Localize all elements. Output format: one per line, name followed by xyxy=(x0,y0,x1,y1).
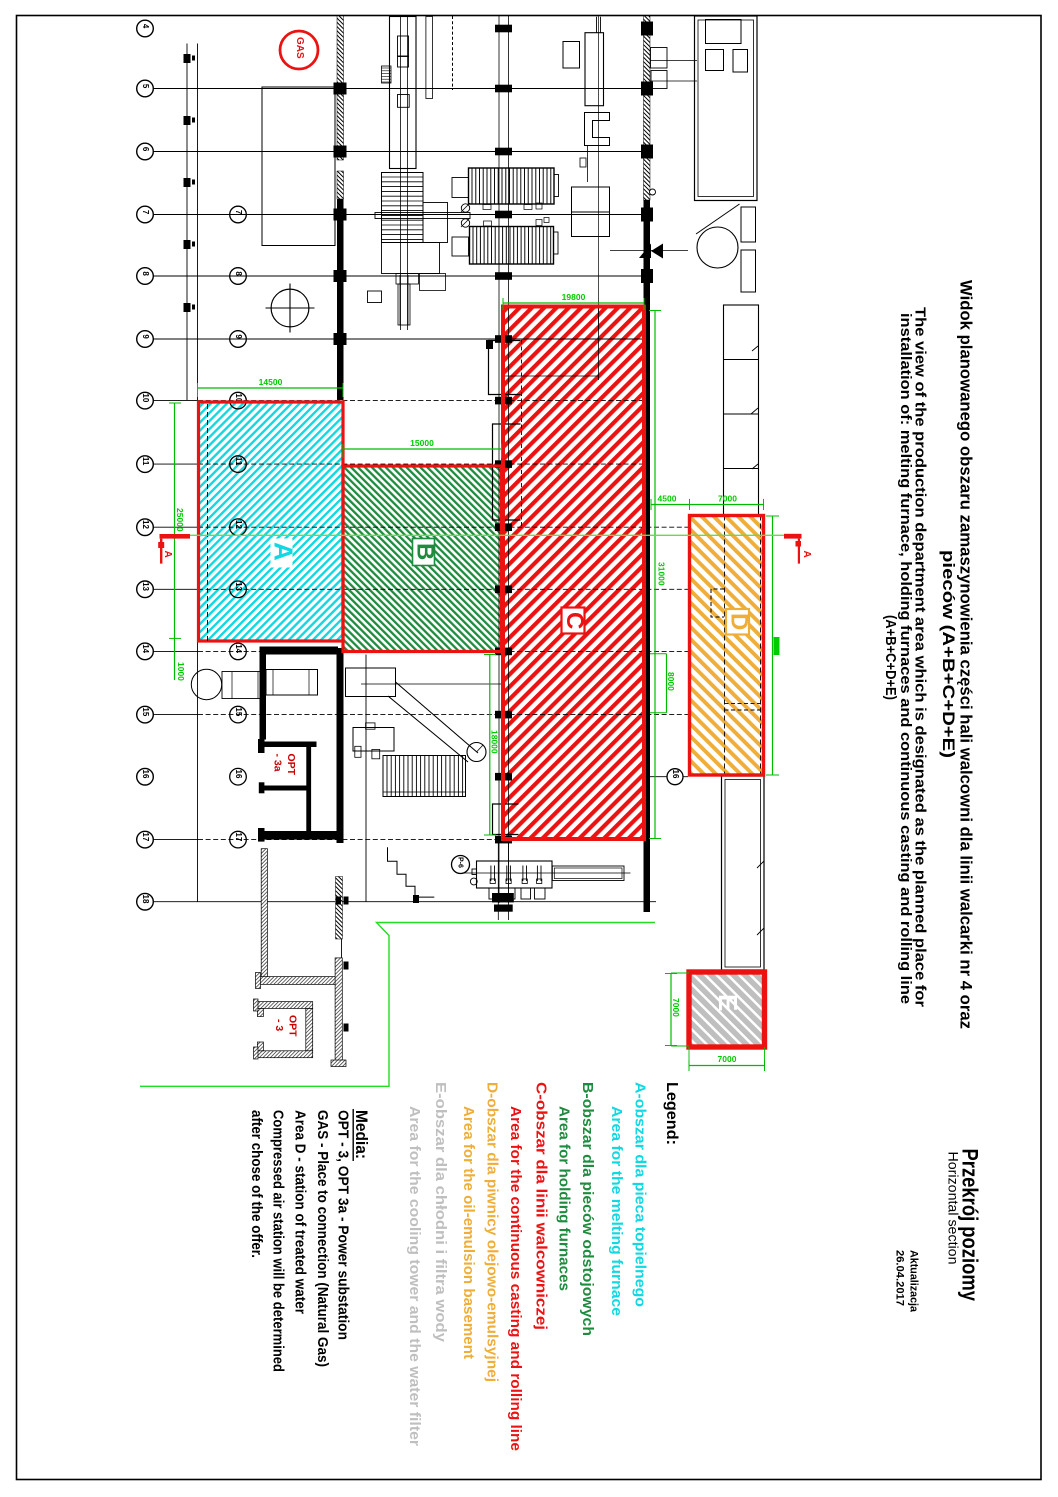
svg-text:7: 7 xyxy=(234,210,243,215)
svg-text:(A+B+C+D+E): (A+B+C+D+E) xyxy=(882,615,899,700)
svg-text:Area D - station of treated wa: Area D - station of treated water xyxy=(291,1110,308,1314)
svg-text:- 3a: - 3a xyxy=(271,754,283,772)
svg-text:4: 4 xyxy=(141,24,150,29)
svg-text:31000: 31000 xyxy=(656,562,666,586)
svg-text:11: 11 xyxy=(141,457,150,466)
svg-text:Legend:: Legend: xyxy=(663,1082,680,1145)
svg-text:12: 12 xyxy=(141,520,150,529)
svg-text:15: 15 xyxy=(141,707,150,716)
svg-text:Aktualizacja: Aktualizacja xyxy=(907,1250,919,1313)
svg-text:Compressed air station will be: Compressed air station will be determine… xyxy=(270,1110,287,1372)
svg-text:9: 9 xyxy=(234,334,243,339)
svg-text:P-6: P-6 xyxy=(457,857,464,868)
svg-text:1000: 1000 xyxy=(176,662,186,681)
svg-text:7000: 7000 xyxy=(718,1054,737,1064)
svg-text:14: 14 xyxy=(141,644,150,653)
svg-text:12: 12 xyxy=(234,520,243,529)
svg-text:13: 13 xyxy=(141,582,150,591)
svg-text:A: A xyxy=(801,551,812,558)
svg-text:13: 13 xyxy=(234,582,243,591)
svg-text:Horizontal section: Horizontal section xyxy=(946,1152,961,1265)
svg-text:- 3: - 3 xyxy=(273,1019,285,1031)
svg-text:5: 5 xyxy=(141,84,150,89)
svg-text:26.04.2017: 26.04.2017 xyxy=(894,1250,906,1306)
svg-text:10: 10 xyxy=(141,393,150,402)
svg-text:pieców (A+B+C+D+E): pieców (A+B+C+D+E) xyxy=(939,550,958,758)
svg-text:14500: 14500 xyxy=(259,377,283,387)
svg-text:Area for the melting furnace: Area for the melting furnace xyxy=(608,1106,625,1316)
svg-text:E: E xyxy=(713,994,743,1011)
svg-text:OPT - 3, OPT 3a - Power substa: OPT - 3, OPT 3a - Power substation xyxy=(334,1110,351,1340)
svg-text:Area for holding furnaces: Area for holding furnaces xyxy=(555,1106,572,1291)
svg-text:16: 16 xyxy=(141,770,150,779)
svg-text:after chose of the offer.: after chose of the offer. xyxy=(248,1110,265,1258)
svg-text:A: A xyxy=(269,542,299,561)
svg-text:4500: 4500 xyxy=(658,494,677,504)
svg-text:6: 6 xyxy=(141,147,150,152)
svg-text:Area for the continuous castin: Area for the continuous casting and roll… xyxy=(507,1106,524,1451)
svg-text:11: 11 xyxy=(234,457,243,466)
svg-text:D: D xyxy=(725,613,752,630)
svg-text:8000: 8000 xyxy=(666,672,676,691)
svg-text:A: A xyxy=(162,551,173,558)
svg-text:7: 7 xyxy=(141,210,150,215)
svg-text:18000: 18000 xyxy=(489,730,499,754)
svg-text:GAS: GAS xyxy=(294,37,305,59)
svg-text:OPT: OPT xyxy=(285,754,297,776)
svg-text:Area for the cooling tower and: Area for the cooling tower and the water… xyxy=(406,1106,423,1446)
svg-text:C: C xyxy=(561,612,588,629)
svg-text:14: 14 xyxy=(234,644,243,653)
svg-text:7000: 7000 xyxy=(718,494,737,504)
svg-text:16: 16 xyxy=(671,770,680,779)
svg-text:7000: 7000 xyxy=(671,998,681,1017)
svg-text:8: 8 xyxy=(141,271,150,276)
svg-text:C-obszar dla linii walcownicze: C-obszar dla linii walcowniczej xyxy=(533,1082,550,1330)
svg-text:17: 17 xyxy=(141,832,150,841)
svg-text:15: 15 xyxy=(234,707,243,716)
svg-text:B-obszar dla pieców odstojowyc: B-obszar dla pieców odstojowych xyxy=(579,1082,596,1336)
svg-text:B: B xyxy=(411,543,438,560)
svg-text:A-obszar dla pieca topielnego: A-obszar dla pieca topielnego xyxy=(632,1082,649,1307)
svg-text:25000: 25000 xyxy=(175,508,185,532)
svg-text:Widok planowanego obszaru zama: Widok planowanego obszaru zamaszynowieni… xyxy=(957,280,976,1029)
svg-text:19800: 19800 xyxy=(562,292,586,302)
svg-text:16: 16 xyxy=(234,770,243,779)
svg-text:E-obszar dla chłodni i filtra: E-obszar dla chłodni i filtra wody xyxy=(432,1082,449,1343)
svg-text:GAS - Place to connection (Nat: GAS - Place to connection (Natural Gas) xyxy=(314,1110,331,1367)
svg-text:Area for the oil-emulsion base: Area for the oil-emulsion basement xyxy=(460,1106,477,1359)
svg-text:8: 8 xyxy=(234,271,243,276)
svg-text:D-obszar dla piwnicy olejowo-e: D-obszar dla piwnicy olejowo-emulsyjnej xyxy=(483,1082,500,1382)
svg-text:Media:: Media: xyxy=(352,1110,371,1159)
svg-text:9: 9 xyxy=(141,334,150,339)
svg-text:OPT: OPT xyxy=(286,1015,298,1037)
svg-text:17: 17 xyxy=(234,832,243,841)
svg-text:15000: 15000 xyxy=(410,438,434,448)
svg-text:18: 18 xyxy=(141,895,150,904)
